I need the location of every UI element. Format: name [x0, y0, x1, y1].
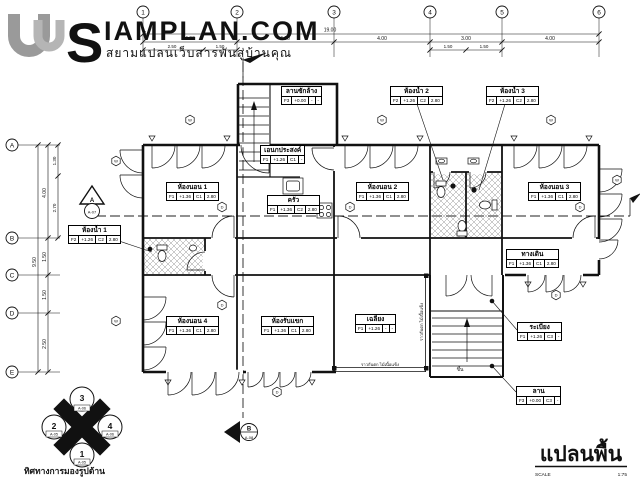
room-label-bedroom1: ห้องนอน 1 F1+1.36C12.80: [166, 182, 219, 201]
room-name: ครัว: [268, 196, 319, 206]
room-label-bedroom4: ห้องนอน 4 F1+1.36C12.80: [166, 316, 219, 335]
room-data-cells: F2+1.26C22.80: [69, 236, 120, 243]
room-label-porch: เฉลียง F1+1.26--: [355, 314, 396, 333]
logo-brand-s: S: [66, 11, 103, 74]
room-data-cells: F1+1.36C22.80: [268, 206, 319, 213]
floor-drain: [450, 183, 455, 188]
dim-sub: 2.70: [52, 203, 57, 212]
grid-bubble-A: A: [10, 142, 15, 149]
dim-seg: 3.00: [461, 36, 471, 42]
room-data-cells: F1+1.36C12.80: [357, 193, 408, 200]
section-flag-right: [630, 193, 640, 203]
title-block: แปลนพื้น SCALE 1:75: [535, 438, 627, 478]
room-label-washing: ลานซักล้าง F3+0.00--: [281, 86, 322, 105]
room-data-cells: F1+1.26C3-: [518, 333, 561, 340]
stair-bottom: ขึ้น: [430, 311, 503, 373]
room-name: ลาน: [517, 387, 560, 397]
window-code: W: [114, 319, 118, 324]
room-label-bathroom3: ห้องน้ำ 3 F2+1.26C22.80: [486, 86, 539, 105]
logo-tagline: สยามแปลนเว็บสารพันสู่บ้านคุณ: [106, 45, 292, 61]
door-code: D: [349, 205, 352, 210]
floor-plan-drawing: S IAMPLAN.COM สยามแปลนเว็บสารพันสู่บ้านค…: [0, 0, 640, 488]
section-a-sheet: A-07: [88, 210, 97, 215]
window-code: W: [549, 118, 553, 123]
room-label-bathroom2: ห้องน้ำ 2 F2+1.26C22.80: [390, 86, 443, 105]
dim-seg: 4.00: [185, 36, 195, 42]
room-label-multipurpose: เอนกประสงค์ F1+1.26C1-: [260, 145, 305, 164]
room-label-bathroom1: ห้องน้ำ 1 F2+1.26C22.80: [68, 225, 121, 244]
compass-top-sheet: A-06: [78, 407, 86, 411]
room-data-cells: F1+1.36C12.80: [507, 260, 558, 267]
compass-bottom-sheet: A-05: [78, 461, 86, 465]
compass-left-sheet: A-05: [50, 433, 58, 437]
dim-top-total: 19.00: [324, 28, 337, 34]
dim-sub: 1.50: [444, 44, 453, 49]
door-code: D: [579, 205, 582, 210]
room-data-cells: F1+1.36C12.80: [167, 193, 218, 200]
room-data-cells: F2+1.26C22.80: [487, 97, 538, 104]
window-code: W: [114, 159, 118, 164]
room-name: ห้องนอน 1: [167, 183, 218, 193]
dim-seg: 4.00: [377, 36, 387, 42]
room-name: ห้องน้ำ 1: [69, 226, 120, 236]
dim-sub: 1.50: [216, 44, 225, 49]
room-data-cells: F3+0.00--: [282, 97, 321, 104]
dim-sub: 1.30: [52, 156, 57, 165]
room-name: ห้องนอน 4: [167, 317, 218, 327]
room-name: ทางเดิน: [507, 250, 558, 260]
compass-top-num: 3: [80, 393, 85, 403]
room-label-bedroom2: ห้องนอน 2 F1+1.36C12.80: [356, 182, 409, 201]
door-code: D: [221, 205, 224, 210]
dimensions-left: 9.50 4.00 1.50 1.50 2.50 1.30 2.70: [32, 142, 61, 374]
window-code: W: [188, 118, 192, 123]
room-label-living: ห้องรับแขก F1+1.36C12.80: [261, 316, 314, 335]
dim-seg: 1.50: [42, 252, 48, 262]
window-code: W: [380, 118, 384, 123]
stair-up-label: ขึ้น: [457, 364, 464, 373]
room-name: ห้องนอน 2: [357, 183, 408, 193]
section-b-sheet: A-08: [245, 435, 254, 440]
dim-seg: 4.00: [280, 36, 290, 42]
compass-right-sheet: A-06: [106, 433, 114, 437]
dim-sub: 2.50: [168, 44, 177, 49]
dim-seg: 2.50: [42, 339, 48, 349]
grid-bubble-5: 5: [500, 9, 504, 16]
section-b-letter: B: [247, 427, 252, 433]
room-data-cells: F1+1.36C12.80: [167, 327, 218, 334]
scale-value: 1:75: [618, 472, 628, 478]
dim-seg: 4.00: [545, 36, 555, 42]
grid-bubble-6: 6: [597, 9, 601, 16]
window-code: W: [615, 178, 619, 183]
compass-left-num: 2: [52, 421, 57, 431]
room-label-yard: ลาน F3+0.00C3-: [516, 386, 561, 405]
compass-right-num: 4: [108, 421, 113, 431]
grid-bubble-2: 2: [235, 9, 239, 16]
floor-drain: [471, 187, 476, 192]
grid-bubble-B: B: [10, 235, 14, 242]
door-code: D: [276, 390, 279, 395]
scale-label: SCALE: [535, 472, 551, 478]
dim-seg: 1.50: [42, 290, 48, 300]
room-name: ห้องน้ำ 3: [487, 87, 538, 97]
room-label-corridor: ทางเดิน F1+1.36C12.80: [506, 249, 559, 268]
stair-up-arrow: [464, 318, 470, 327]
compass-caption: ทิศทางการมองรูปด้าน: [24, 466, 105, 477]
floor-plan-sheet: S IAMPLAN.COM สยามแปลนเว็บสารพันสู่บ้านค…: [0, 0, 640, 488]
grid-bubble-E: E: [10, 369, 15, 376]
sink-icon: [287, 181, 300, 191]
room-data-cells: F1+1.26--: [356, 325, 395, 332]
grid-bubble-4: 4: [428, 9, 432, 16]
room-name: ระเบียง: [518, 323, 561, 333]
room-data-cells: F1+1.36C12.80: [262, 327, 313, 334]
room-label-balcony: ระเบียง F1+1.26C3-: [517, 322, 562, 341]
door-code: D: [555, 293, 558, 298]
room-data-cells: F2+1.26C22.80: [391, 97, 442, 104]
section-marker-b: B A-08: [224, 421, 258, 443]
railing-note-vertical: ราวกันตก ไม้เนื้อแข็ง: [418, 303, 424, 341]
room-name: เฉลียง: [356, 315, 395, 325]
room-data-cells: F1+1.26C1-: [261, 156, 304, 163]
room-name: ห้องนอน 3: [529, 183, 580, 193]
dim-seg: 4.00: [42, 188, 48, 198]
grid-bubble-3: 3: [332, 9, 336, 16]
dim-sub: 1.50: [480, 44, 489, 49]
grid-bubble-D: D: [10, 310, 15, 317]
grid-bubble-1: 1: [141, 9, 145, 16]
door-code: D: [221, 303, 224, 308]
stair-up-arrow: [251, 101, 257, 110]
room-label-kitchen: ครัว F1+1.36C22.80: [267, 195, 320, 214]
room-name: ห้องน้ำ 2: [391, 87, 442, 97]
room-label-bedroom3: ห้องนอน 3 F1+1.36C12.80: [528, 182, 581, 201]
section-marker-a: A A-07: [80, 186, 104, 219]
siamplan-logo: S IAMPLAN.COM สยามแปลนเว็บสารพันสู่บ้านค…: [14, 11, 319, 74]
compass-bottom-num: 1: [80, 449, 85, 459]
sheet-title: แปลนพื้น: [540, 438, 623, 466]
dim-left-total: 9.50: [32, 257, 38, 267]
room-data-cells: F3+0.00C3-: [517, 397, 560, 404]
compass: 3 A-06 2 A-05 4 A-06 1 A-05 ทิศทางการมอง…: [24, 387, 122, 477]
room-name: ห้องรับแขก: [262, 317, 313, 327]
room-data-cells: F1+1.36C12.80: [529, 193, 580, 200]
room-name: ลานซักล้าง: [282, 87, 321, 97]
grid-bubble-C: C: [10, 272, 15, 279]
railing-note: ราวกันตก ไม้เนื้อแข็ง: [361, 361, 399, 367]
room-name: เอนกประสงค์: [261, 146, 304, 156]
